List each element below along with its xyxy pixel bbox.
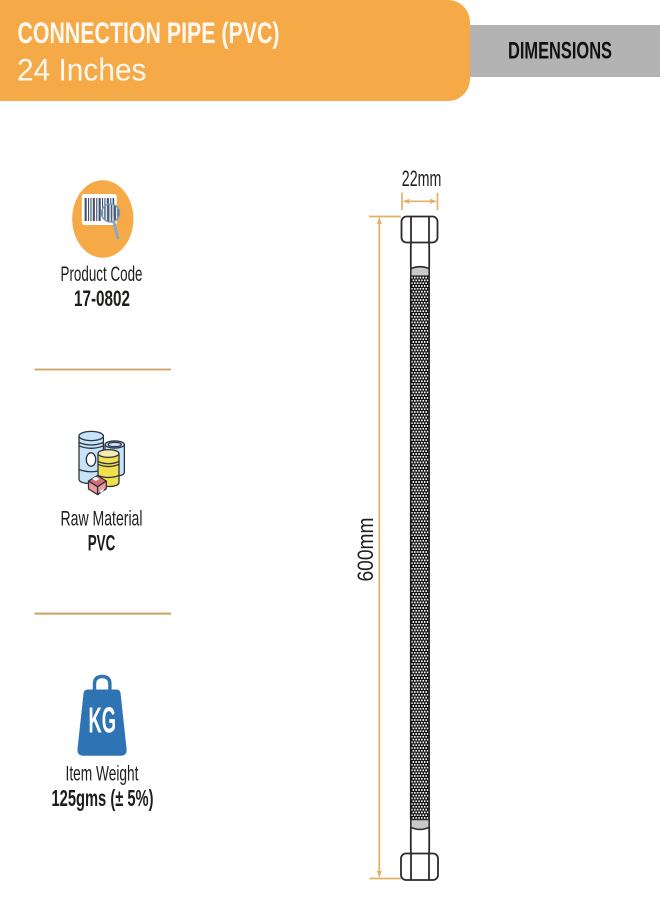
svg-text:Product Code: Product Code [61, 262, 143, 286]
svg-text:22mm: 22mm [402, 166, 442, 191]
svg-text:CONNECTION PIPE (PVC): CONNECTION PIPE (PVC) [18, 17, 280, 50]
svg-text:Raw Material: Raw Material [61, 507, 143, 531]
svg-text:KG: KG [89, 699, 117, 740]
svg-text:PVC: PVC [88, 531, 116, 556]
svg-text:24 Inches: 24 Inches [17, 52, 147, 88]
svg-text:125gms (± 5%): 125gms (± 5%) [52, 785, 154, 811]
svg-text:Item Weight: Item Weight [66, 762, 139, 786]
svg-text:600mm: 600mm [353, 518, 378, 582]
svg-text:17-0802: 17-0802 [74, 286, 130, 311]
svg-text:DIMENSIONS: DIMENSIONS [508, 38, 612, 65]
